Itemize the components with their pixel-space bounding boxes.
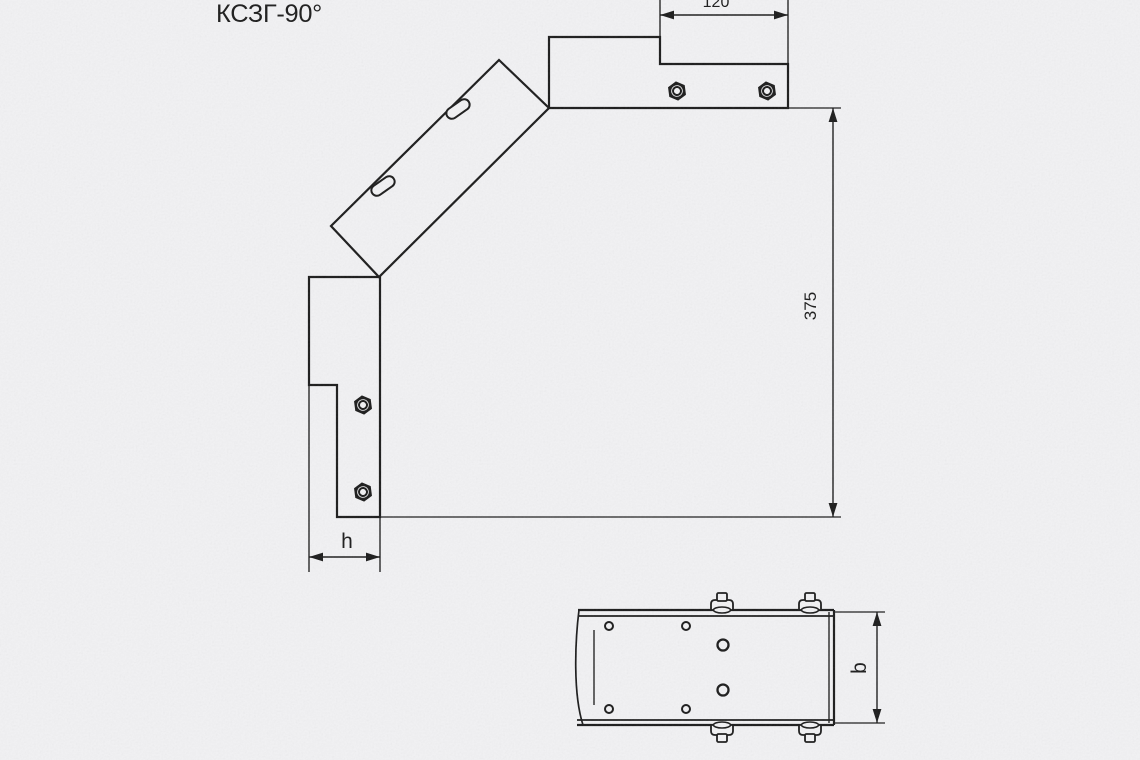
dimension-h-label: h bbox=[341, 530, 353, 553]
bolt bbox=[354, 483, 373, 502]
dimension-h: h bbox=[309, 385, 380, 572]
bolt bbox=[758, 82, 777, 101]
horizontal-rail-outline bbox=[549, 37, 788, 108]
slot-hole bbox=[369, 174, 397, 198]
dimension-b-label: b bbox=[848, 662, 871, 674]
plan-view: b bbox=[576, 593, 885, 742]
bolt bbox=[799, 722, 821, 742]
paper-noise-overlay bbox=[0, 0, 1140, 760]
drawing-sheet: КСЗГ-90° 120 bbox=[0, 0, 1140, 760]
bolt bbox=[799, 593, 821, 613]
diagonal-rail-outline bbox=[331, 60, 549, 277]
center-hole bbox=[718, 685, 729, 696]
vertical-rail-outline bbox=[309, 277, 380, 517]
dimension-b: b bbox=[834, 612, 885, 723]
technical-drawing: КСЗГ-90° 120 bbox=[0, 0, 1140, 760]
bolt bbox=[711, 722, 733, 742]
small-hole bbox=[605, 705, 613, 713]
dimension-375-label: 375 bbox=[801, 292, 820, 320]
small-hole bbox=[605, 622, 613, 630]
bolt bbox=[668, 82, 687, 101]
page-title: КСЗГ-90° bbox=[216, 0, 322, 28]
dimension-120-label: 120 bbox=[703, 0, 730, 11]
dimension-375: 375 bbox=[380, 108, 841, 517]
plan-break-line bbox=[576, 610, 583, 725]
small-hole bbox=[682, 705, 690, 713]
center-hole bbox=[718, 640, 729, 651]
dimension-120: 120 bbox=[660, 0, 788, 64]
bolt bbox=[354, 396, 373, 415]
small-hole bbox=[682, 622, 690, 630]
bolt bbox=[711, 593, 733, 613]
side-view: 120 375 h bbox=[309, 0, 841, 572]
